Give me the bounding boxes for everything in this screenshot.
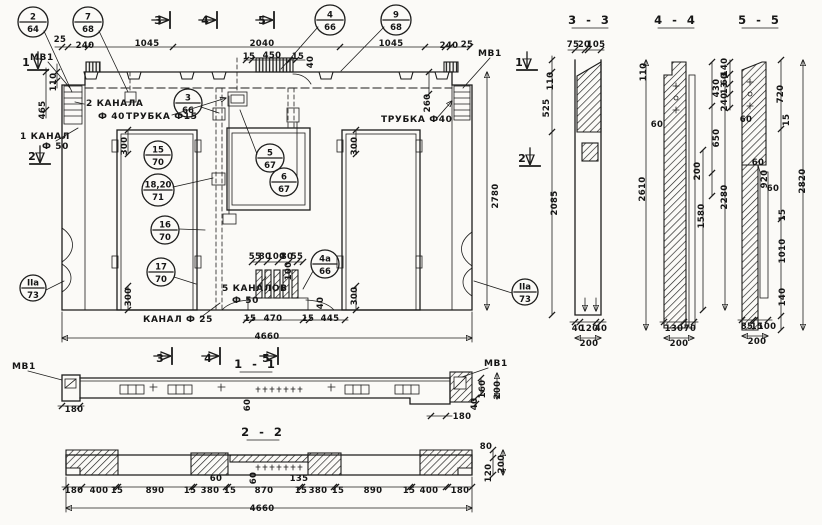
callout-balloon: 968 [381,5,411,35]
dimension-text: 180 [65,405,84,415]
dimension-text: 240 [76,41,95,51]
section-mark-3-bottom: 3 [156,352,164,365]
dimension-text: 525 [542,99,552,118]
dimension-text: 2280 [720,185,730,210]
dimension-text: 2085 [550,191,560,216]
balloon-sheet-number: 70 [159,233,171,243]
section-mark-2-left: 2 [28,150,36,163]
dimension-text: 15 [184,486,196,496]
callout-balloon: 1770 [147,258,175,286]
dimension-text: 200 [693,162,703,181]
dimension-text: 180 [451,486,470,496]
callout-balloon: IIа73 [512,279,538,305]
dimension-text: 650 [712,129,722,148]
dimension-text: 25 [461,40,473,50]
dimension-text: 870 [255,486,274,496]
section-title-4-4: 4 - 4 [654,13,698,27]
balloon-sheet-number: 66 [324,23,336,33]
dimension-text: 240 [720,93,730,112]
callout-balloon: 768 [73,7,103,37]
leader-lines [28,27,512,380]
dimension-text: 240 [440,41,459,51]
section-mark-2-right: 2 [518,152,526,165]
section-mark-1-left: 1 [22,56,30,69]
dimension-text: 400 [420,486,439,496]
dimension-text: 200 [497,455,507,474]
dimension-text: 105 [587,40,606,50]
dimension-text: 300 [124,288,134,307]
dimension-text: 140 [778,288,788,307]
balloon-detail-number: 18,20 [145,181,172,191]
balloon-sheet-number: 67 [264,161,276,171]
section-3-3-view [575,60,601,315]
dimension-text: 60 [651,120,663,130]
dimension-text: 200 [748,337,767,347]
drawing-page: 264768466968366157018,207116701770567667… [0,0,822,525]
engineering-drawing: 264768466968366157018,207116701770567667… [0,0,822,525]
dimension-text: 40 [316,297,326,309]
dimension-text: 15 [778,209,788,221]
balloon-sheet-number: 68 [390,23,402,33]
dimension-text: 450 [263,51,282,61]
dimension-text: 15 [332,486,344,496]
dimension-text: 15 [244,314,256,324]
dimension-text: 100 [758,322,777,332]
section-title-3-3: 3 - 3 [568,13,612,27]
dimension-text: 890 [146,486,165,496]
balloon-detail-number: 6 [281,173,287,183]
dimension-text: 160 [478,380,488,399]
section-4-4-view [664,62,695,328]
dimension-text: 40 [470,398,480,410]
dimension-text: 380 [309,486,328,496]
label-channel-25: КАНАЛ Ф 25 [143,315,213,325]
dimension-text: 15 [292,52,304,62]
balloon-sheet-number: 67 [278,185,290,195]
dimension-text: 15 [111,486,123,496]
label-1-channel-dia: Ф 50 [42,142,69,152]
callout-balloon: 1570 [144,141,172,169]
dimension-text: 80 [480,442,492,452]
balloon-detail-number: 3 [185,94,191,104]
dimension-text: 15 [295,486,307,496]
dimension-text: 15 [782,114,792,126]
dimension-text: 2820 [798,169,808,194]
label-mv1-top-right: МВ1 [478,49,502,59]
dimension-text: 200 [670,339,689,349]
dimension-text: 1010 [778,239,788,264]
dimension-text: 135 [290,474,309,484]
balloon-detail-number: 4а [319,255,331,265]
dimension-text: 110 [49,73,59,92]
balloon-detail-number: 4 [327,11,333,21]
label-mv1-top-left: МВ1 [30,53,54,63]
label-tube-40: ТРУБКА Ф40 [381,115,452,125]
section-mark-3-top: 3 [154,14,162,27]
dimension-text: 180 [453,412,472,422]
balloon-sheet-number: 70 [152,158,164,168]
dimension-text: 400 [90,486,109,496]
callout-balloon: 466 [315,5,345,35]
balloon-sheet-number: 71 [152,193,164,203]
section-1-1-view [62,372,472,404]
dimension-text: 15 [224,486,236,496]
dimension-text: 200 [493,381,503,400]
dimension-text: 465 [38,101,48,120]
dimension-text: 300 [350,137,360,156]
dimension-text: 120 [484,464,494,483]
balloon-detail-number: 15 [152,146,164,156]
dimension-text: 720 [776,85,786,104]
dimension-text: 260 [423,94,433,113]
dimension-text: 60 [752,158,764,168]
callout-balloon: 667 [270,168,298,196]
label-1-channel: 1 КАНАЛ [20,132,70,142]
dimension-text: 25 [54,35,66,45]
dimension-text: 100 [284,262,294,281]
balloon-detail-number: 9 [393,11,399,21]
section-5-5-view [742,62,768,330]
dimension-text: 1045 [379,39,404,49]
dimension-text: 40 [306,56,316,68]
balloon-detail-number: 2 [30,13,36,23]
section-title-2-2: 2 - 2 [241,425,285,439]
dimension-text: 180 [65,486,84,496]
callout-balloon: 567 [256,144,284,172]
dimension-text: 2780 [491,184,501,209]
dimension-text: 890 [364,486,383,496]
dimension-text: 60 [767,184,779,194]
dimension-text: 130 [665,324,684,334]
label-mv1-1-1-left: МВ1 [12,362,36,372]
embedded-part-mv1-right [454,86,470,120]
section-mark-4-bottom: 4 [204,352,212,365]
balloon-sheet-number: 70 [155,275,167,285]
callout-balloon: 1670 [151,216,179,244]
label-2-channels-dia: Ф 40 [98,112,125,122]
dimension-text: 4660 [255,332,280,342]
dimension-text: 445 [321,314,340,324]
callout-balloon: 264 [18,7,48,37]
balloon-detail-number: IIа [519,283,531,293]
section-title-5-5: 5 - 5 [738,13,782,27]
dimension-text: 55 [291,252,303,262]
balloon-detail-number: 5 [267,149,273,159]
dimension-text: 4660 [250,504,275,514]
dimension-text: 110 [639,63,649,82]
balloon-detail-number: 16 [159,221,171,231]
label-tube-15: ТРУБКА Ф15 [126,112,197,122]
dimension-text: 15 [302,314,314,324]
main-elevation-view [62,58,472,310]
label-2-channels: 2 КАНАЛА [86,99,143,109]
section-2-2-view [66,450,472,475]
dimension-text: 1580 [697,204,707,229]
dimension-text: 15 [403,486,415,496]
balloon-detail-number: IIа [27,279,39,289]
balloon-sheet-number: 68 [82,25,94,35]
dimension-text: 60 [243,399,253,411]
callout-balloon: 4а66 [311,250,339,278]
section-title-1-1: 1 - 1 [234,357,278,371]
dimension-text: 70 [684,324,696,334]
dimension-text: 110 [546,72,556,91]
dimension-text: 60 [210,474,222,484]
balloon-sheet-number: 66 [319,267,331,277]
dimension-text: 2040 [250,39,275,49]
dimension-text: 300 [120,137,130,156]
dimension-text: 60 [249,472,259,484]
dimension-text: 200 [580,339,599,349]
dimension-text: 60 [740,115,752,125]
dimension-text: 470 [264,314,283,324]
balloon-sheet-number: 73 [27,291,39,301]
section-mark-5-top: 5 [258,14,266,27]
dimension-text: 300 [350,287,360,306]
dimension-text: 2610 [638,177,648,202]
label-5-channels-dia: Ф 50 [232,296,259,306]
dimension-text: 15 [243,52,255,62]
dimension-text: 1045 [135,39,160,49]
section-mark-1-right: 1 [515,56,523,69]
callout-balloon: 18,2071 [142,174,174,206]
balloon-detail-number: 7 [85,13,91,23]
dimension-text: 40 [595,324,607,334]
dimension-text: 13 [720,82,730,94]
balloon-sheet-number: 73 [519,295,531,305]
dimension-text: 380 [201,486,220,496]
label-5-channels: 5 КАНАЛОВ [222,284,288,294]
label-mv1-1-1-right: МВ1 [484,359,508,369]
callout-balloon: IIа73 [20,275,46,301]
section-mark-4-top: 4 [201,14,209,27]
balloon-detail-number: 17 [155,263,167,273]
balloon-sheet-number: 64 [27,25,39,35]
